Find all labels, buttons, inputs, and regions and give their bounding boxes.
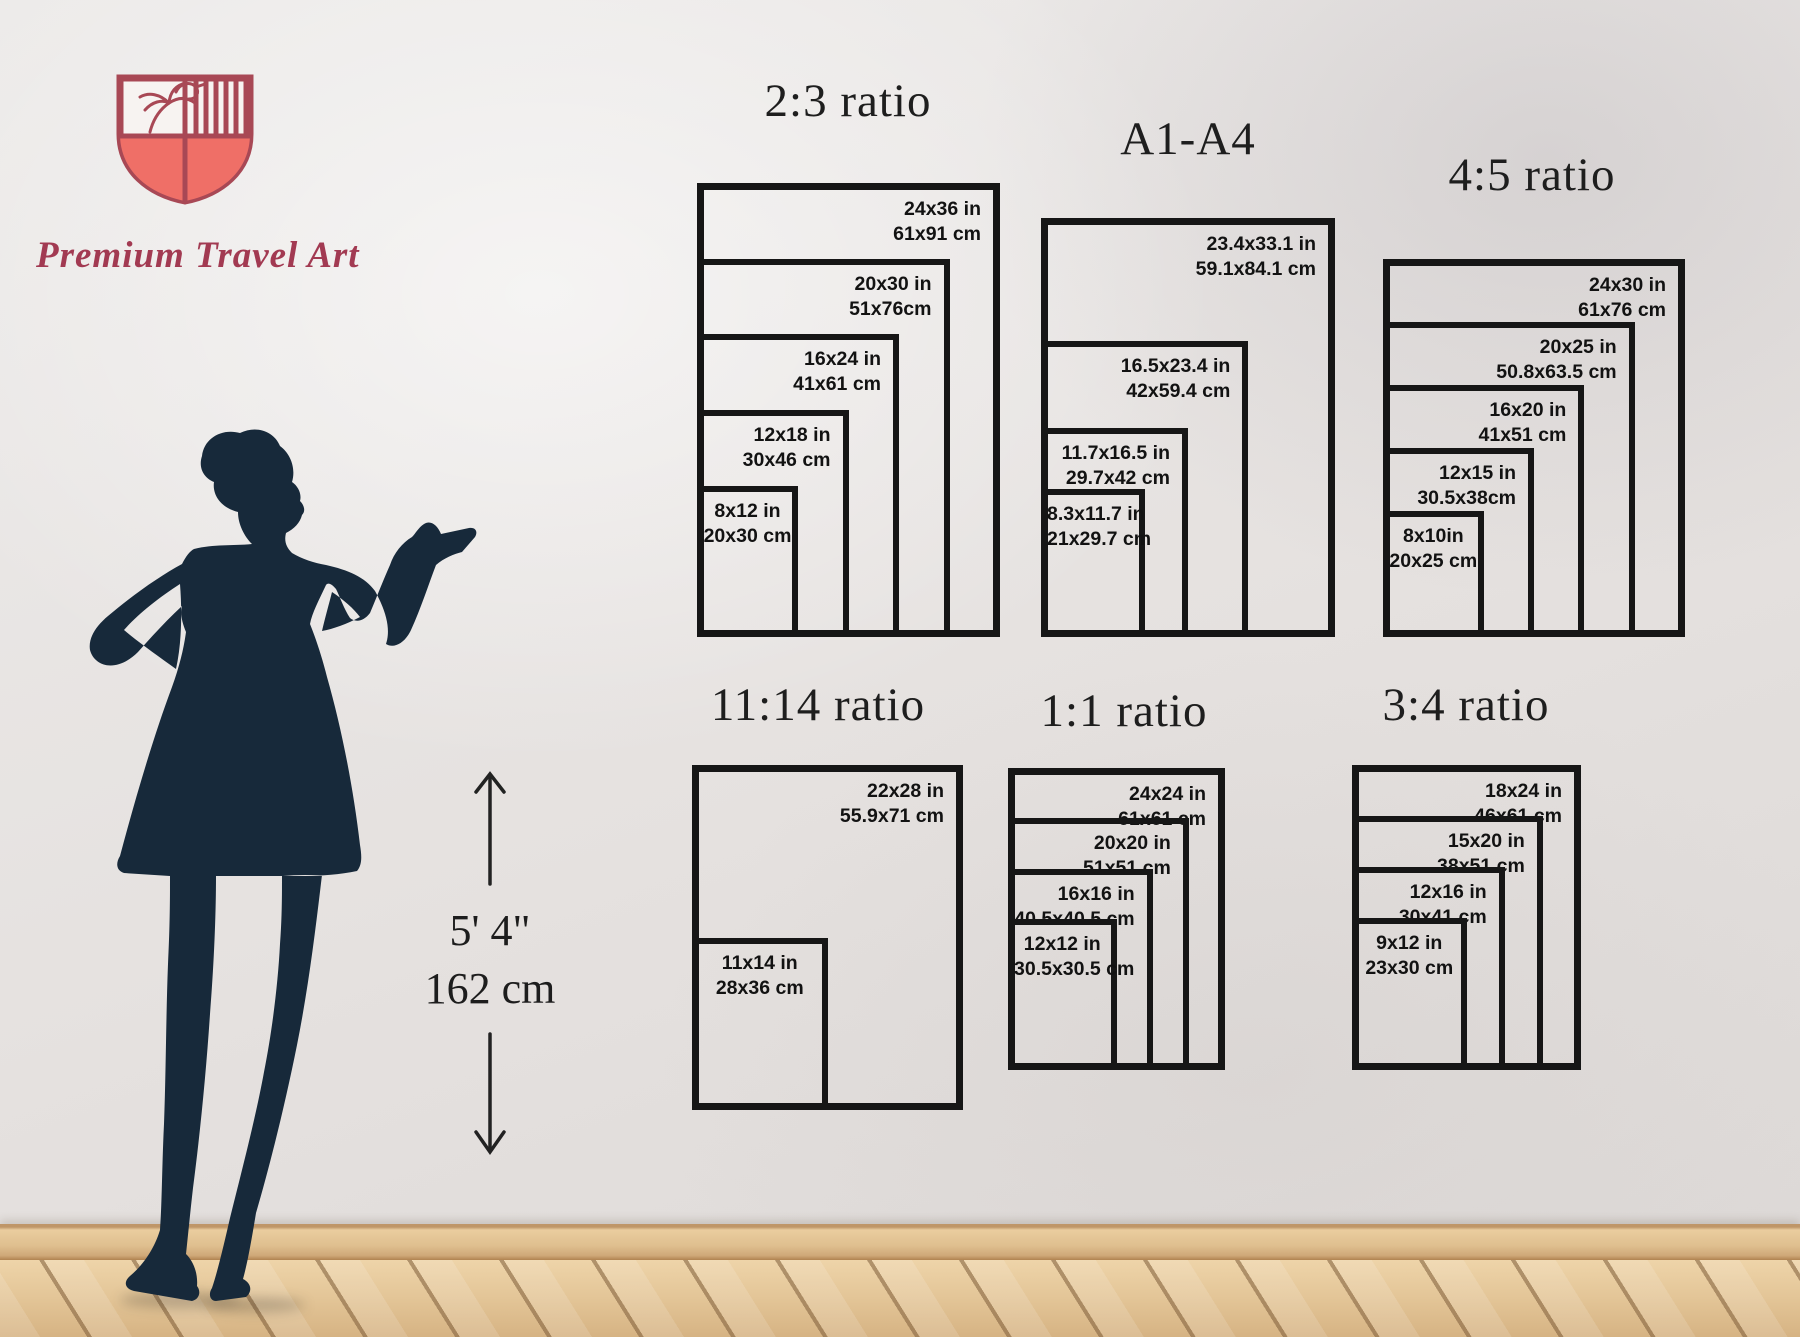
print-size-label: 20x30 in51x76cm [849, 272, 931, 322]
print-size-label: 16x24 in41x61 cm [793, 347, 881, 397]
size-chart-r45: 24x30 in61x76 cm20x25 in50.8x63.5 cm16x2… [1383, 259, 1685, 637]
chart-title-r23: 2:3 ratio [765, 74, 932, 128]
height-cm-label: 162 cm [380, 960, 600, 1018]
print-size-label: 20x25 in50.8x63.5 cm [1496, 335, 1616, 385]
print-size-label: 12x12 in30.5x30.5 cm [1014, 932, 1111, 982]
size-chart-r1114: 22x28 in55.9x71 cm11x14 in28x36 cm [692, 765, 963, 1110]
print-size-label: 12x18 in30x46 cm [743, 423, 831, 473]
height-annotation: 5' 4" 162 cm [380, 770, 600, 1156]
chart-title-r34: 3:4 ratio [1383, 678, 1550, 732]
print-size-frame: 8.3x11.7 in21x29.7 cm [1041, 489, 1145, 637]
print-size-frame: 8x12 in20x30 cm [697, 486, 798, 637]
print-size-label: 9x12 in23x30 cm [1358, 931, 1461, 981]
chart-title-a14: A1-A4 [1120, 112, 1256, 166]
print-size-frame: 8x10in20x25 cm [1383, 511, 1484, 637]
shield-palm-logo-icon [110, 70, 260, 208]
chart-title-r1114: 11:14 ratio [711, 678, 925, 732]
print-size-frame: 11x14 in28x36 cm [692, 938, 828, 1111]
size-chart-r11: 24x24 in61x61 cm20x20 in51x51 cm16x16 in… [1008, 768, 1225, 1070]
print-size-label: 24x36 in61x91 cm [893, 197, 981, 247]
print-size-label: 12x15 in30.5x38cm [1417, 461, 1516, 511]
arrow-down-icon [470, 1030, 510, 1156]
print-size-frame: 12x12 in30.5x30.5 cm [1008, 919, 1117, 1070]
print-size-label: 16x20 in41x51 cm [1479, 398, 1567, 448]
print-size-label: 8x12 in20x30 cm [703, 499, 792, 549]
size-chart-a14: 23.4x33.1 in59.1x84.1 cm16.5x23.4 in42x5… [1041, 218, 1335, 637]
print-size-label: 23.4x33.1 in59.1x84.1 cm [1196, 232, 1316, 282]
chart-title-r45: 4:5 ratio [1449, 148, 1616, 202]
poster-size-guide-scene: Premium Travel Art 5' 4" 162 cm 2:3 rati… [0, 0, 1800, 1337]
brand-name: Premium Travel Art [36, 234, 366, 277]
print-size-label: 8.3x11.7 in21x29.7 cm [1047, 502, 1139, 552]
print-size-label: 11.7x16.5 in29.7x42 cm [1062, 441, 1170, 491]
print-size-label: 8x10in20x25 cm [1389, 524, 1478, 574]
size-chart-r34: 18x24 in46x61 cm15x20 in38x51 cm12x16 in… [1352, 765, 1581, 1070]
print-size-label: 16.5x23.4 in42x59.4 cm [1121, 354, 1231, 404]
print-size-frame: 9x12 in23x30 cm [1352, 918, 1467, 1071]
brand-block: Premium Travel Art [36, 70, 366, 277]
height-feet-label: 5' 4" [380, 902, 600, 960]
arrow-up-icon [470, 770, 510, 888]
print-size-label: 11x14 in28x36 cm [698, 951, 822, 1001]
size-chart-r23: 24x36 in61x91 cm20x30 in51x76cm16x24 in4… [697, 183, 1000, 637]
chart-title-r11: 1:1 ratio [1041, 684, 1208, 738]
print-size-label: 24x30 in61x76 cm [1578, 273, 1666, 323]
print-size-label: 22x28 in55.9x71 cm [840, 779, 944, 829]
